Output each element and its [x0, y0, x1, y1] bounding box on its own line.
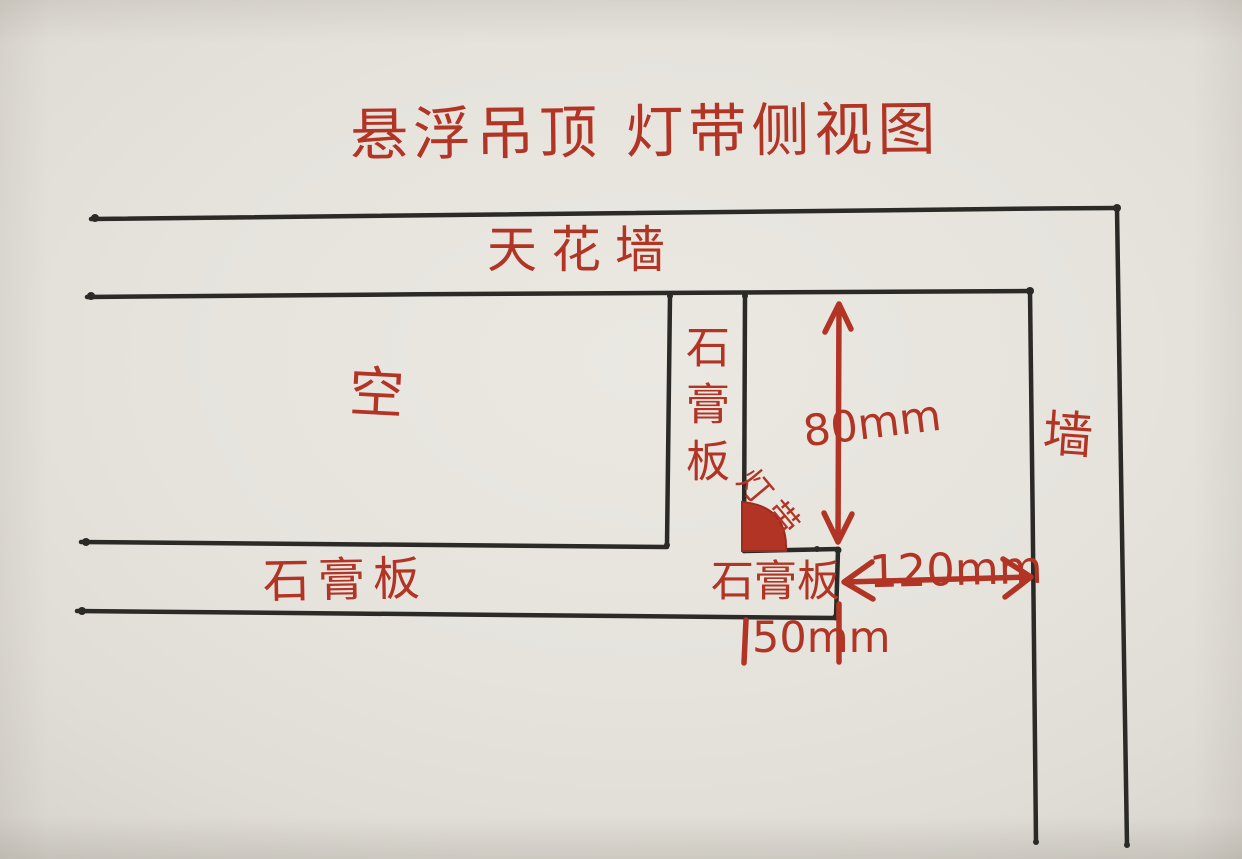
label-wall: 墙	[1041, 408, 1094, 461]
pen-dots	[78, 204, 1130, 848]
cavity-bottom-line	[81, 542, 667, 547]
label-gypsum-board-bottom: 石膏板	[263, 556, 429, 606]
dimension-marks	[744, 304, 1031, 663]
label-gypsum-board-vertical: 石膏板	[681, 324, 725, 495]
paper-photo: 悬浮吊顶 灯带侧视图 天花墙 空 石膏板 灯带 80mm 石膏板 120mm 5…	[0, 0, 1242, 859]
ceiling-top-line	[91, 208, 1117, 219]
dim-120mm-text: 120mm	[868, 545, 1043, 595]
board-bottom-line	[77, 611, 836, 618]
ceiling-bottom-line	[87, 291, 1030, 297]
label-cavity: 空	[348, 365, 406, 423]
structure-lines	[77, 208, 1127, 845]
dim-50mm-text: 50mm	[752, 617, 891, 660]
wall-outer-line	[1117, 208, 1127, 845]
dim-50mm-tick-left	[744, 620, 746, 663]
vertical-board-left-edge	[667, 296, 670, 545]
label-gypsum-board-shelf: 石膏板	[711, 561, 840, 604]
diagram-title: 悬浮吊顶 灯带侧视图	[350, 100, 941, 164]
label-ceiling: 天花墙	[487, 225, 679, 275]
